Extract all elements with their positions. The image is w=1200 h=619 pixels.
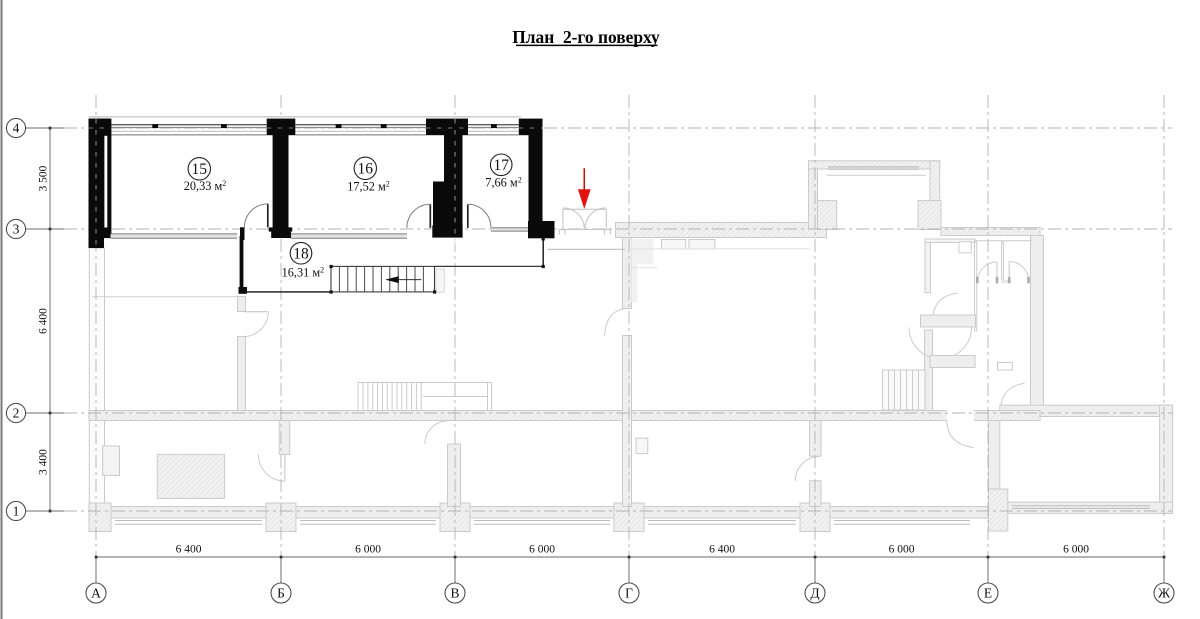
svg-text:16,31 м2: 16,31 м2 bbox=[282, 265, 325, 279]
svg-text:Б: Б bbox=[277, 586, 285, 601]
svg-text:А: А bbox=[91, 586, 101, 601]
svg-text:В: В bbox=[450, 586, 459, 601]
svg-text:6 000: 6 000 bbox=[355, 544, 381, 556]
svg-text:6 400: 6 400 bbox=[176, 544, 202, 556]
svg-text:4: 4 bbox=[13, 121, 20, 136]
svg-text:3 500: 3 500 bbox=[38, 165, 50, 191]
svg-text:7,66 м2: 7,66 м2 bbox=[485, 176, 521, 190]
svg-text:Ж: Ж bbox=[1158, 586, 1171, 601]
svg-text:16: 16 bbox=[358, 161, 374, 178]
svg-text:6 400: 6 400 bbox=[709, 544, 735, 556]
svg-text:3: 3 bbox=[13, 222, 20, 237]
svg-text:2: 2 bbox=[13, 406, 20, 421]
svg-text:6 000: 6 000 bbox=[889, 544, 915, 556]
svg-text:Е: Е bbox=[984, 586, 992, 601]
svg-text:6 400: 6 400 bbox=[38, 308, 50, 334]
svg-text:План 2-го поверху: План 2-го поверху bbox=[512, 27, 660, 47]
svg-text:20,33 м2: 20,33 м2 bbox=[184, 179, 227, 193]
svg-text:17: 17 bbox=[493, 157, 509, 174]
svg-text:6 000: 6 000 bbox=[529, 544, 555, 556]
svg-text:3 400: 3 400 bbox=[38, 449, 50, 475]
svg-text:17,52 м2: 17,52 м2 bbox=[347, 180, 390, 194]
svg-text:Г: Г bbox=[625, 586, 633, 601]
svg-text:18: 18 bbox=[293, 245, 309, 262]
svg-text:Д: Д bbox=[810, 586, 819, 601]
svg-text:6 000: 6 000 bbox=[1063, 544, 1089, 556]
svg-text:15: 15 bbox=[192, 161, 208, 178]
svg-text:1: 1 bbox=[13, 504, 20, 519]
